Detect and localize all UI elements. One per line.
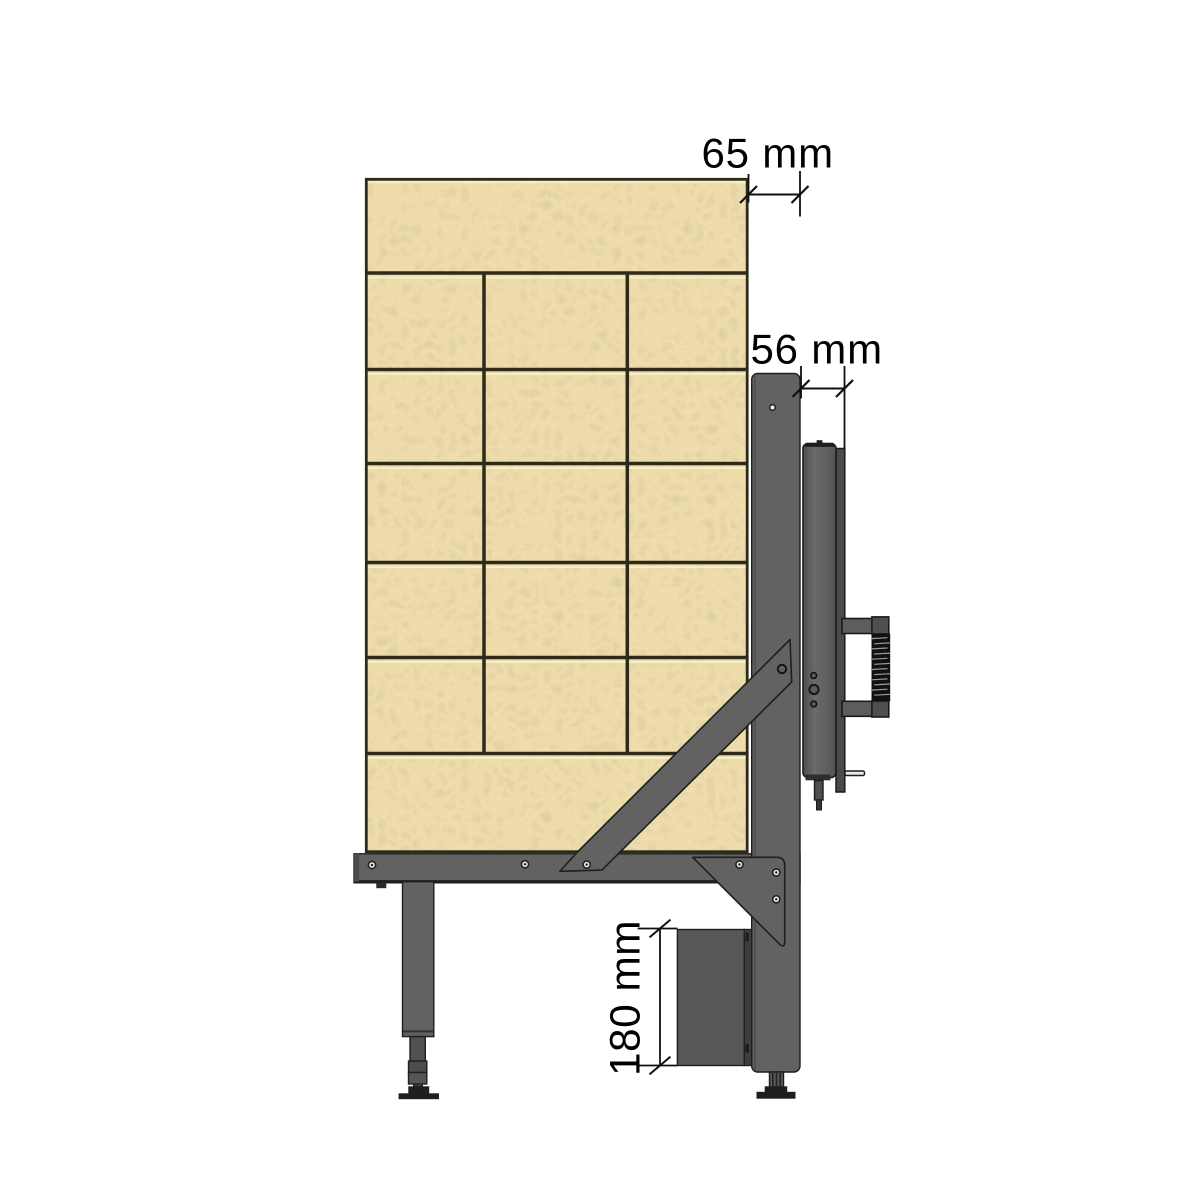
- svg-text:56 mm: 56 mm: [751, 326, 883, 373]
- svg-text:65 mm: 65 mm: [702, 130, 834, 177]
- svg-text:180 mm: 180 mm: [603, 920, 650, 1076]
